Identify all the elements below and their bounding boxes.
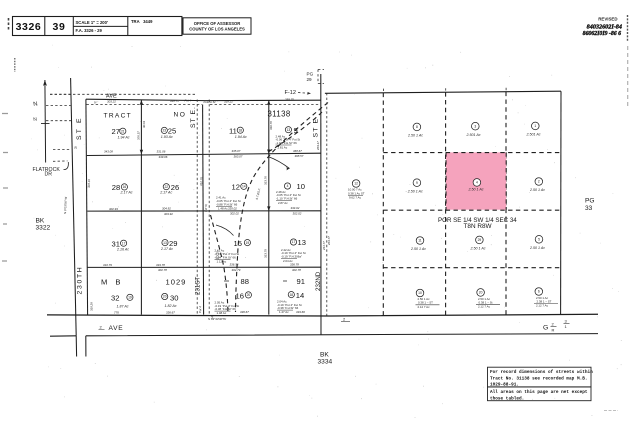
svg-text:2.501 Ac: 2.501 Ac bbox=[526, 133, 541, 137]
svg-text:304.92: 304.92 bbox=[162, 207, 171, 211]
svg-text:5: 5 bbox=[538, 238, 540, 242]
svg-text:1.48 Ac: 1.48 Ac bbox=[218, 207, 228, 211]
svg-text:313.76: 313.76 bbox=[264, 176, 268, 185]
svg-text:8: 8 bbox=[416, 125, 418, 129]
svg-text:9.62 7 Ac: 9.62 7 Ac bbox=[349, 196, 362, 200]
svg-text:6: 6 bbox=[538, 290, 540, 294]
svg-text:2.50 1 Ac: 2.50 1 Ac bbox=[529, 246, 545, 250]
svg-text:9°: 9° bbox=[94, 100, 97, 104]
svg-text:16: 16 bbox=[236, 291, 244, 300]
svg-text:1.82 Ac: 1.82 Ac bbox=[165, 304, 177, 308]
svg-text:3: 3 bbox=[474, 124, 476, 128]
svg-text:16: 16 bbox=[123, 185, 127, 189]
svg-text:368.67: 368.67 bbox=[293, 149, 302, 153]
svg-text:ST E: ST E bbox=[76, 116, 83, 140]
svg-text:2.17 Ac: 2.17 Ac bbox=[160, 247, 173, 251]
svg-text:2.50 1 Ac: 2.50 1 Ac bbox=[468, 188, 484, 192]
svg-text:13: 13 bbox=[287, 128, 291, 132]
svg-text:9: 9 bbox=[416, 181, 418, 185]
svg-text:358.75: 358.75 bbox=[285, 98, 294, 102]
svg-text:1: 1 bbox=[534, 124, 536, 128]
svg-text:2.16 Ac: 2.16 Ac bbox=[116, 247, 129, 251]
svg-text:303.22: 303.22 bbox=[107, 100, 116, 104]
svg-text:17: 17 bbox=[292, 240, 296, 244]
svg-text:14: 14 bbox=[242, 185, 246, 189]
svg-text:33: 33 bbox=[585, 205, 593, 212]
svg-text:10: 10 bbox=[418, 291, 422, 295]
svg-text:Tract No. 31138 see recorded: Tract No. 31138 see recorded map M.B. bbox=[490, 376, 588, 381]
svg-text:AVE: AVE bbox=[109, 325, 124, 332]
svg-text:230TH: 230TH bbox=[77, 266, 84, 295]
svg-text:88: 88 bbox=[241, 277, 249, 286]
svg-text:2.12 7 Ac: 2.12 7 Ac bbox=[536, 304, 549, 308]
svg-text:- 2.50 1 Ac: - 2.50 1 Ac bbox=[406, 189, 423, 193]
svg-text:1.47 Ac: 1.47 Ac bbox=[279, 310, 289, 314]
svg-text:1.94 Ac: 1.94 Ac bbox=[235, 135, 247, 139]
svg-text:13: 13 bbox=[298, 238, 306, 247]
svg-text:376.37: 376.37 bbox=[137, 131, 141, 140]
svg-text:18: 18 bbox=[289, 293, 293, 297]
svg-text:15: 15 bbox=[234, 239, 242, 248]
svg-text:TRACT: TRACT bbox=[104, 112, 132, 119]
svg-text:302.78: 302.78 bbox=[158, 268, 167, 272]
svg-text:Put 4: Put 4 bbox=[198, 306, 202, 313]
svg-text:302.02: 302.02 bbox=[230, 212, 239, 216]
svg-text:336.78: 336.78 bbox=[290, 262, 299, 266]
svg-text:2.50 1 Ac: 2.50 1 Ac bbox=[410, 247, 426, 251]
svg-text:30: 30 bbox=[170, 293, 178, 302]
svg-text:1029: 1029 bbox=[166, 278, 187, 287]
svg-text:REVISED: REVISED bbox=[598, 17, 617, 22]
svg-text:DR: DR bbox=[45, 172, 53, 178]
svg-text:302.78: 302.78 bbox=[292, 268, 301, 272]
svg-text:COUNTY OF LOS ANGELES: COUNTY OF LOS ANGELES bbox=[189, 27, 245, 32]
svg-text:1.93 Ac: 1.93 Ac bbox=[161, 135, 173, 139]
svg-text:For record dimensions of stree: For record dimensions of streets within bbox=[490, 370, 593, 375]
svg-text:91: 91 bbox=[297, 277, 305, 286]
svg-text:2.17 Ac: 2.17 Ac bbox=[159, 190, 172, 194]
svg-text:2.12 7 Ac: 2.12 7 Ac bbox=[418, 305, 431, 309]
svg-text:13: 13 bbox=[163, 241, 167, 245]
svg-text:20: 20 bbox=[247, 293, 251, 297]
svg-text:1.94 Ac: 1.94 Ac bbox=[118, 135, 130, 139]
svg-text:2.50 1 Ac: 2.50 1 Ac bbox=[407, 134, 423, 138]
svg-text:336.78: 336.78 bbox=[230, 263, 239, 267]
svg-text:2.17 Ac: 2.17 Ac bbox=[120, 191, 133, 195]
svg-text:R: R bbox=[552, 327, 555, 332]
svg-text:10: 10 bbox=[297, 182, 305, 191]
svg-text:22: 22 bbox=[164, 185, 168, 189]
svg-text:231ST: 231ST bbox=[195, 277, 202, 295]
svg-text:334.66: 334.66 bbox=[296, 310, 305, 314]
svg-text:20: 20 bbox=[479, 291, 483, 295]
svg-text:2.87 Ac: 2.87 Ac bbox=[278, 201, 288, 205]
svg-text:M B: M B bbox=[101, 278, 124, 287]
svg-text:SCALE 1″ = 200′: SCALE 1″ = 200′ bbox=[76, 20, 108, 25]
svg-text:ST E.: ST E. bbox=[190, 106, 197, 128]
svg-text:28: 28 bbox=[112, 183, 120, 192]
svg-text:336.67: 336.67 bbox=[240, 310, 249, 314]
svg-text:N: N bbox=[33, 101, 38, 108]
svg-text:2.501 Ac: 2.501 Ac bbox=[466, 133, 481, 137]
svg-text:29: 29 bbox=[307, 77, 313, 82]
svg-text:4: 4 bbox=[476, 181, 478, 185]
svg-text:2.50 1 Ac: 2.50 1 Ac bbox=[529, 188, 545, 192]
svg-text:241.77: 241.77 bbox=[322, 241, 326, 251]
svg-text:3326: 3326 bbox=[16, 21, 42, 33]
svg-text:2.12 7 Ac: 2.12 7 Ac bbox=[478, 305, 491, 309]
svg-text:31138: 31138 bbox=[268, 110, 291, 119]
svg-text:318.29: 318.29 bbox=[89, 302, 93, 311]
svg-text:17: 17 bbox=[122, 241, 126, 245]
svg-text:349.06: 349.06 bbox=[159, 155, 168, 159]
svg-text:302.79: 302.79 bbox=[232, 268, 241, 272]
svg-text:F-12: F-12 bbox=[285, 90, 297, 96]
svg-text:331.06: 331.06 bbox=[157, 149, 166, 153]
svg-text:30.61: 30.61 bbox=[142, 120, 146, 128]
svg-text:BK: BK bbox=[36, 218, 45, 225]
svg-text:1.48 Ac: 1.48 Ac bbox=[217, 311, 227, 315]
svg-text:32: 32 bbox=[111, 294, 119, 303]
svg-text:304.92: 304.92 bbox=[164, 212, 173, 216]
svg-text:20: 20 bbox=[163, 295, 167, 299]
svg-text:23: 23 bbox=[162, 129, 166, 133]
svg-text:86062I0I9 -86 6: 86062I0I9 -86 6 bbox=[583, 31, 621, 37]
svg-text:334.02: 334.02 bbox=[291, 206, 300, 210]
svg-text:302.02: 302.02 bbox=[293, 211, 302, 215]
svg-text:ST E: ST E bbox=[313, 118, 320, 138]
svg-text:4: 4 bbox=[287, 184, 289, 188]
svg-text:11: 11 bbox=[418, 239, 422, 243]
svg-text:334.78: 334.78 bbox=[156, 263, 165, 267]
svg-text:39: 39 bbox=[53, 21, 66, 33]
svg-text:19: 19 bbox=[246, 241, 250, 245]
svg-text:BK: BK bbox=[320, 352, 329, 359]
svg-text:Future St: Future St bbox=[204, 100, 216, 104]
svg-text:18: 18 bbox=[238, 128, 242, 132]
svg-text:TRA 3449: TRA 3449 bbox=[131, 19, 153, 24]
svg-text:776: 776 bbox=[114, 311, 119, 315]
svg-text:302.93: 302.93 bbox=[109, 207, 118, 211]
svg-text:Put 4: Put 4 bbox=[185, 99, 192, 103]
svg-text:336.67: 336.67 bbox=[166, 310, 175, 314]
svg-text:335.07: 335.07 bbox=[232, 149, 241, 153]
svg-text:310.79: 310.79 bbox=[103, 263, 112, 267]
svg-text:312.76: 312.76 bbox=[199, 177, 203, 186]
svg-text:313.79: 313.79 bbox=[264, 249, 268, 258]
svg-text:T8N R8W: T8N R8W bbox=[464, 223, 493, 230]
svg-text:335.02: 335.02 bbox=[228, 206, 237, 210]
svg-text:2.50 1 Ac: 2.50 1 Ac bbox=[470, 247, 486, 251]
svg-text:PG: PG bbox=[307, 72, 314, 77]
svg-text:263.17: 263.17 bbox=[316, 141, 320, 151]
svg-text:313.79: 313.79 bbox=[216, 251, 220, 260]
svg-text:363.07: 363.07 bbox=[234, 154, 243, 158]
svg-text:PG: PG bbox=[585, 198, 595, 205]
svg-text:264.77: 264.77 bbox=[327, 236, 331, 246]
svg-text:0.38 1 Ac ST: 0.38 1 Ac ST bbox=[348, 191, 365, 195]
svg-text:318.22: 318.22 bbox=[224, 100, 233, 104]
svg-text:F.A. 3326 - 29: F.A. 3326 - 29 bbox=[76, 28, 103, 33]
svg-text:OFFICE OF ASSESSOR: OFFICE OF ASSESSOR bbox=[194, 21, 241, 26]
svg-text:84032602I-84: 84032602I-84 bbox=[587, 24, 622, 31]
svg-text:All areas on this page are ne: All areas on this page are net except bbox=[490, 390, 588, 395]
svg-text:343.08: 343.08 bbox=[104, 150, 113, 154]
svg-text:12: 12 bbox=[354, 182, 358, 186]
svg-text:3322: 3322 bbox=[36, 225, 51, 232]
svg-text:3334: 3334 bbox=[318, 359, 333, 366]
svg-text:310.76: 310.76 bbox=[269, 121, 273, 130]
svg-text:N 89°43′30″W: N 89°43′30″W bbox=[208, 317, 226, 321]
svg-text:19: 19 bbox=[128, 296, 132, 300]
svg-text:21: 21 bbox=[121, 129, 125, 133]
svg-text:those tabled.: those tabled. bbox=[490, 396, 524, 401]
svg-text:368.57: 368.57 bbox=[295, 154, 304, 158]
svg-text:G: G bbox=[543, 324, 548, 331]
svg-text:1.87 Ac: 1.87 Ac bbox=[117, 304, 129, 308]
svg-text:29: 29 bbox=[478, 238, 482, 242]
svg-text:12: 12 bbox=[232, 183, 240, 192]
svg-text:2: 2 bbox=[538, 180, 540, 184]
svg-text:303.16: 303.16 bbox=[87, 179, 91, 188]
svg-text:NO: NO bbox=[174, 111, 187, 118]
svg-text:14: 14 bbox=[296, 291, 304, 300]
